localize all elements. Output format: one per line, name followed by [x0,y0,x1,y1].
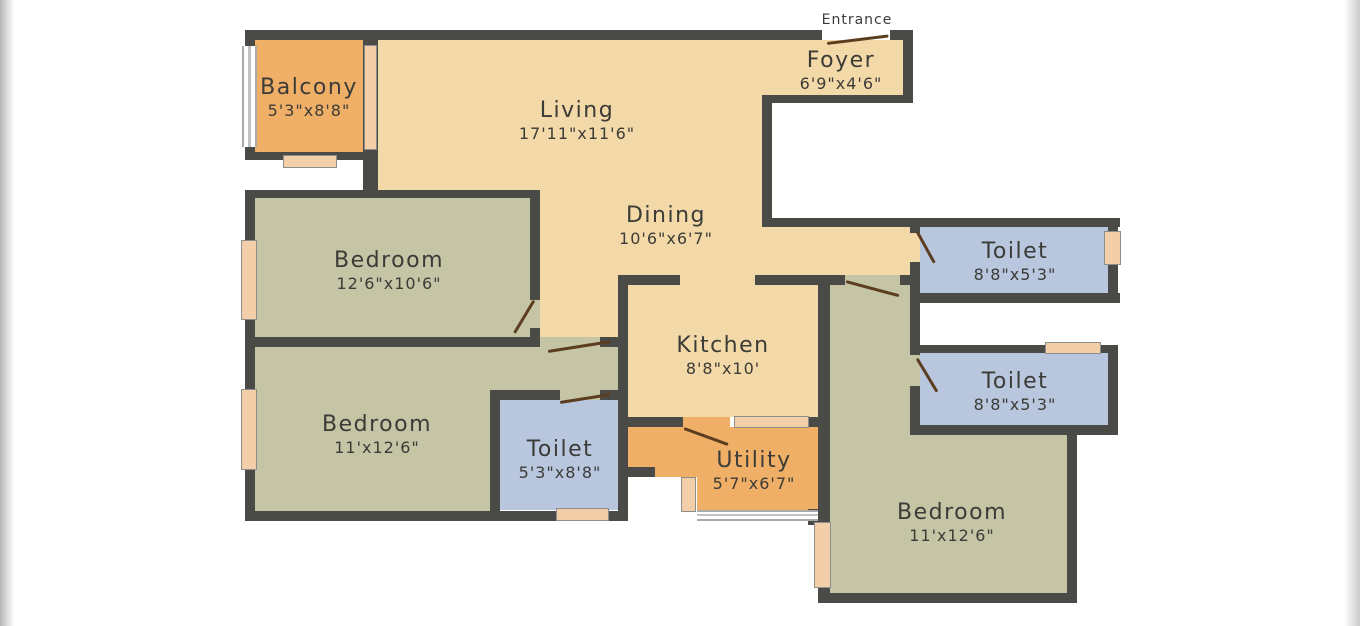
toilet3-label: Toilet 5'3"x8'8" [519,438,602,483]
kitchen-doorway-floor [680,275,755,285]
toilet3-window [556,508,609,521]
wall-segment [1108,345,1118,433]
wall-segment [900,275,910,285]
bedroom1-window [241,240,257,320]
wall-segment [818,593,1077,603]
wall-segment [910,425,1118,435]
balcony-railing [242,46,257,147]
toilet2-window [1045,342,1101,354]
toilet1-dims: 8'8"x5'3" [974,265,1057,285]
bedroom2-label: Bedroom 11'x12'6" [322,413,432,458]
wall-segment [530,328,540,347]
foyer-name: Foyer [800,49,883,74]
balcony-sliding-door [364,45,377,150]
wall-segment [913,293,1120,303]
bedroom2-floor-extension [490,347,618,390]
utility-dims: 5'7"x6'7" [713,474,796,494]
wall-segment [755,275,845,285]
bedroom3-label: Bedroom 11'x12'6" [897,501,1007,546]
wall-segment [245,30,255,47]
bedroom1-name: Bedroom [334,249,444,274]
wall-segment [490,390,560,400]
bedroom1-dims: 12'6"x10'6" [334,274,444,294]
dining-label: Dining 10'6"x6'7" [619,204,713,249]
balcony-name: Balcony [260,76,358,101]
balcony-sill-window [283,155,337,168]
wall-segment [762,95,772,227]
toilet-corridor-floor [762,227,910,275]
wall-segment [245,190,255,242]
wall-segment [245,337,537,347]
wall-segment [245,190,540,198]
bedroom2-name: Bedroom [322,413,432,438]
bedroom2-dims: 11'x12'6" [322,438,432,458]
wall-segment [530,190,540,300]
wall-segment [910,386,920,435]
bedroom3-window [814,522,831,588]
wall-segment [245,30,822,40]
utility-side-window [681,477,696,512]
living-name: Living [519,99,635,124]
utility-name: Utility [713,449,796,474]
utility-label: Utility 5'7"x6'7" [713,449,796,494]
wall-segment [818,587,830,603]
kitchen-name: Kitchen [676,334,769,359]
utility-doorway-floor [683,417,730,427]
utility-window [734,416,809,428]
wall-segment [490,390,500,521]
hall-floor [540,275,618,337]
right-edge-shading [1344,0,1360,626]
entrance-label: Entrance [822,12,893,28]
toilet2-label: Toilet 8'8"x5'3" [974,370,1057,415]
toilet1-window [1104,231,1121,265]
kitchen-dims: 8'8"x10' [676,359,769,379]
toilet3-dims: 5'3"x8'8" [519,463,602,483]
utility-railing [697,510,818,521]
toilet2-name: Toilet [974,370,1057,395]
wall-segment [245,468,255,515]
left-edge-shading [0,0,14,626]
floor-plan: Entrance Balcony 5'3"x8'8" Living 17'11"… [0,0,1360,626]
bedroom3-name: Bedroom [897,501,1007,526]
wall-segment [618,275,628,521]
wall-segment [1108,263,1118,303]
kitchen-label: Kitchen 8'8"x10' [676,334,769,379]
wall-segment [1067,425,1077,603]
toilet2-dims: 8'8"x5'3" [974,395,1057,415]
toilet3-name: Toilet [519,438,602,463]
passage-floor [830,285,910,435]
floor-plan-drawing: Entrance Balcony 5'3"x8'8" Living 17'11"… [0,0,1360,626]
living-label: Living 17'11"x11'6" [519,99,635,144]
wall-segment [762,218,1120,227]
wall-segment [245,318,255,390]
bedroom3-dims: 11'x12'6" [897,526,1007,546]
toilet1-name: Toilet [974,240,1057,265]
balcony-label: Balcony 5'3"x8'8" [260,76,358,121]
living-dims: 17'11"x11'6" [519,124,635,144]
dining-name: Dining [619,204,713,229]
foyer-dims: 6'9"x4'6" [800,74,883,94]
wall-segment [903,30,913,103]
dining-dims: 10'6"x6'7" [619,229,713,249]
wall-segment [910,262,920,355]
wall-segment [245,146,255,160]
wall-segment [818,275,830,523]
toilet1-label: Toilet 8'8"x5'3" [974,240,1057,285]
foyer-label: Foyer 6'9"x4'6" [800,49,883,94]
bedroom1-label: Bedroom 12'6"x10'6" [334,249,444,294]
bedroom2-window [241,389,257,470]
wall-segment [762,95,913,103]
balcony-dims: 5'3"x8'8" [260,101,358,121]
